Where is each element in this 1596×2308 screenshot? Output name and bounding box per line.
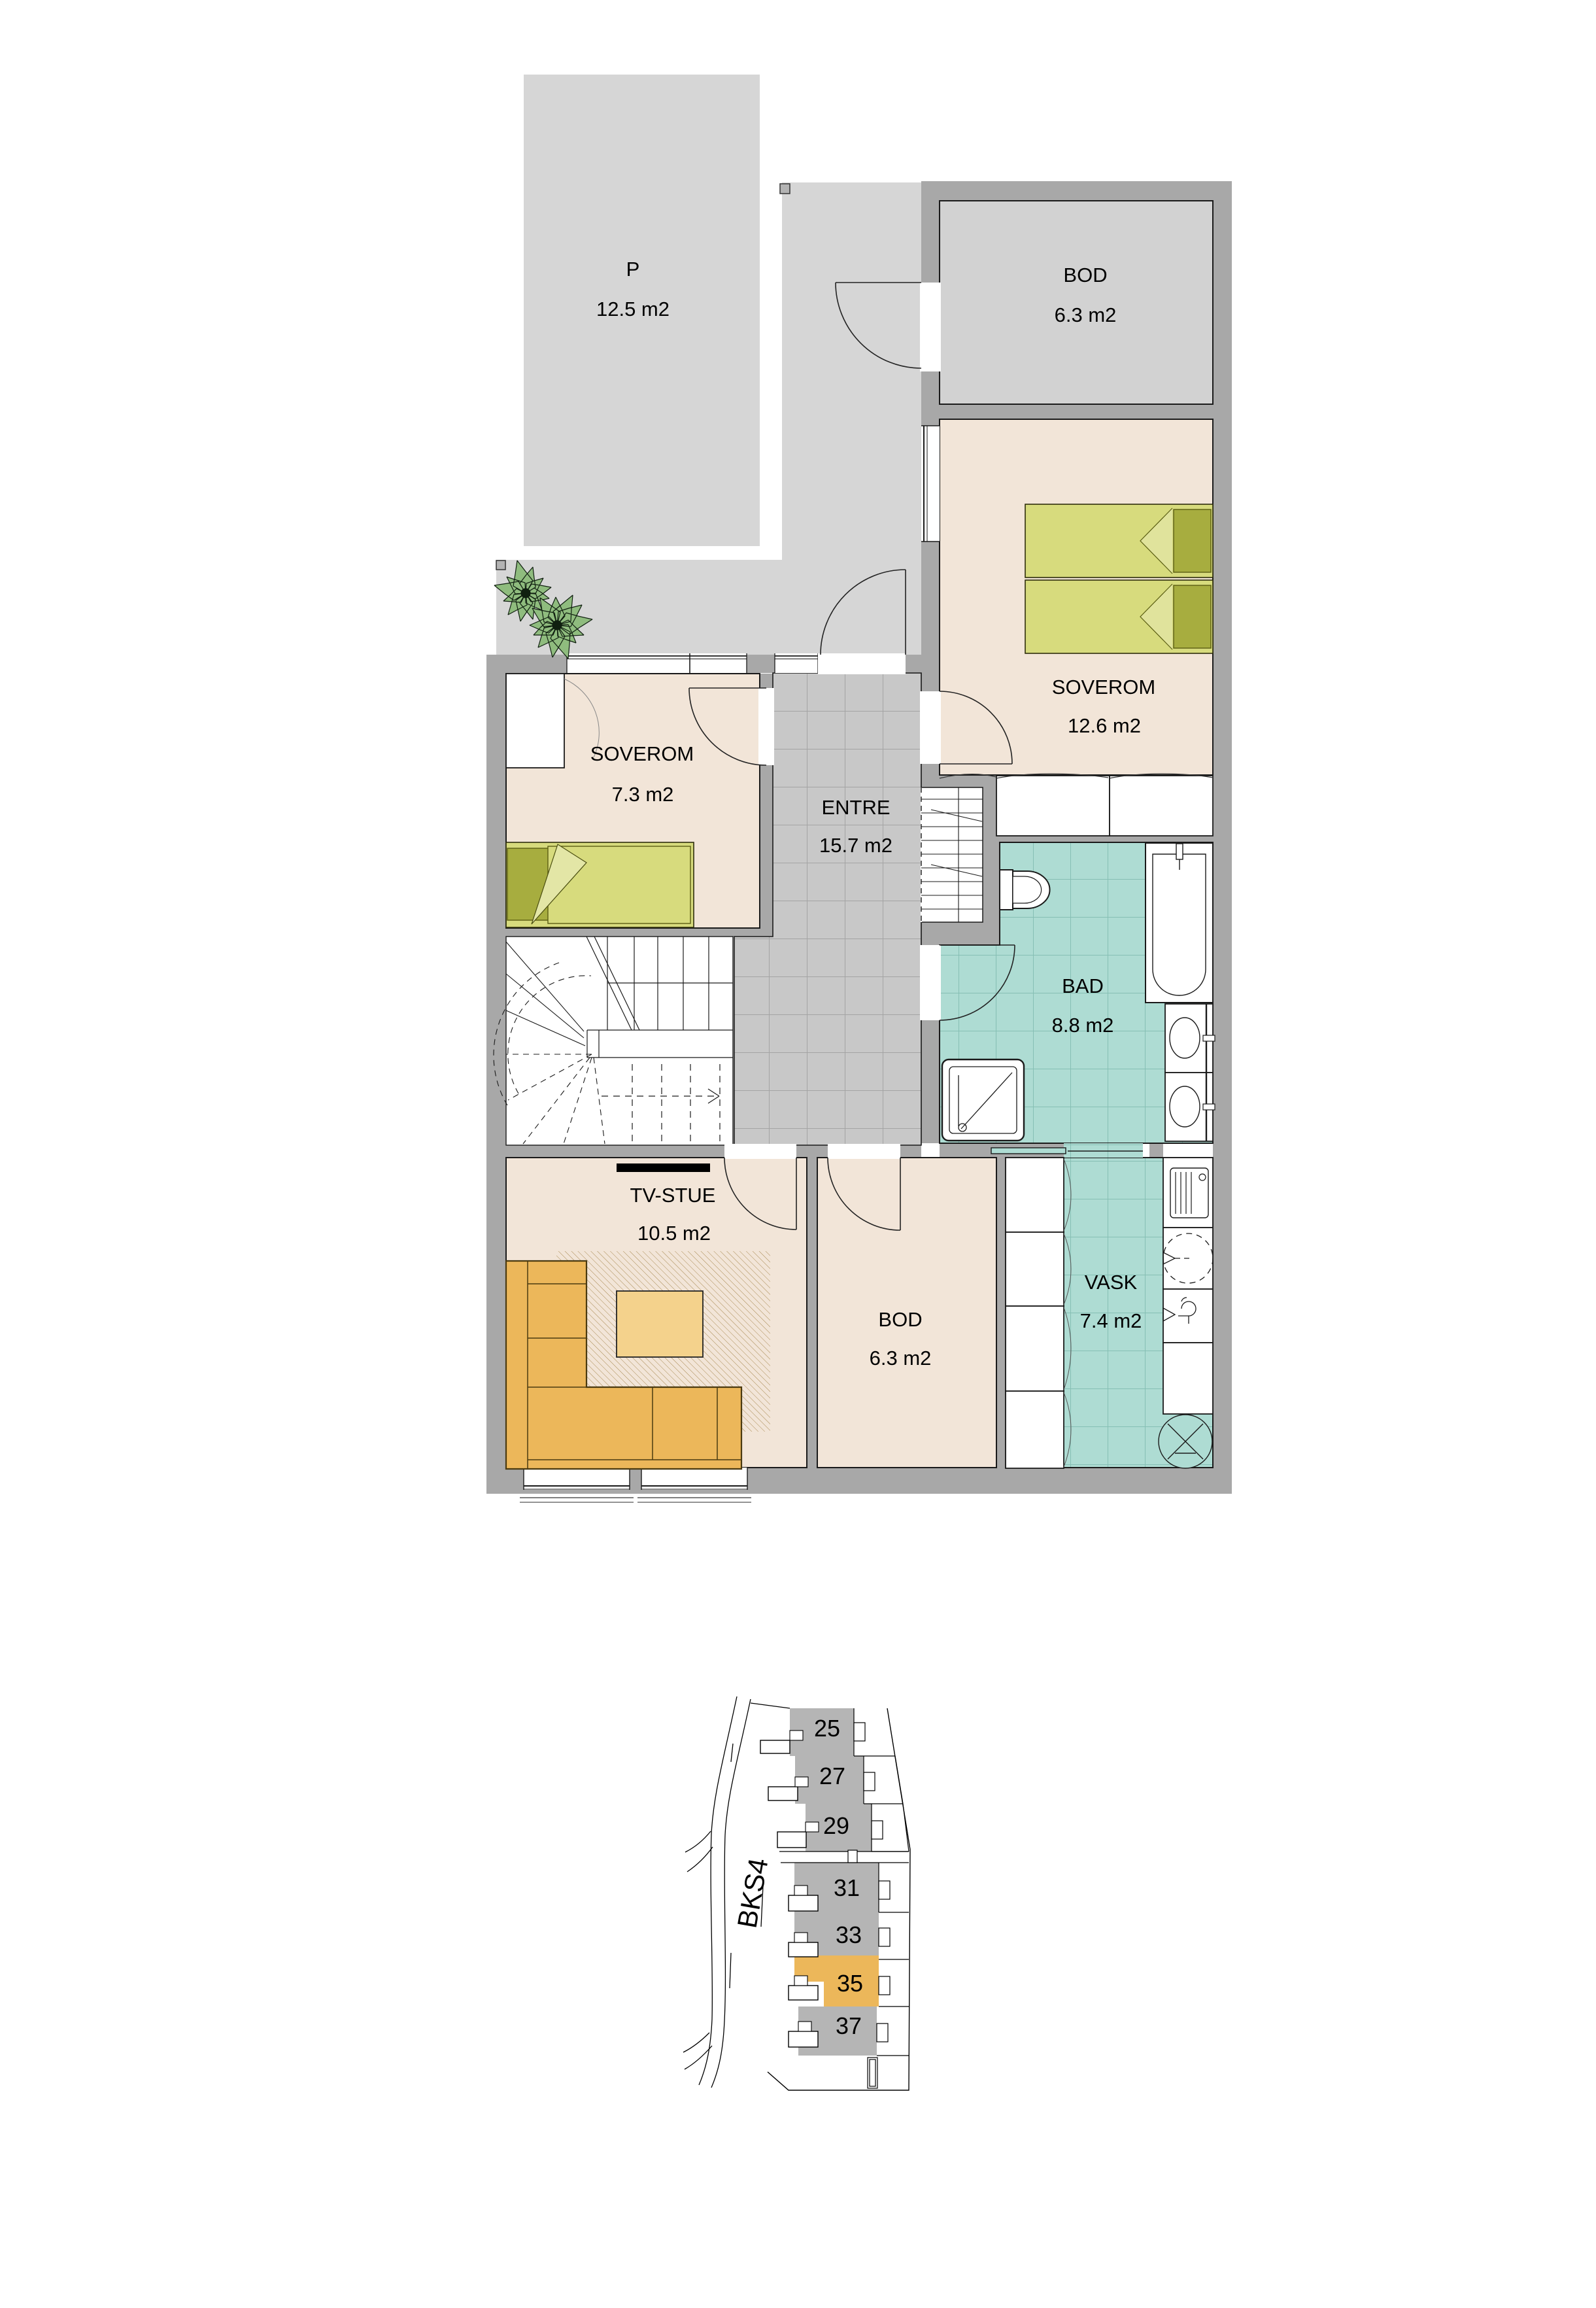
svg-text:12.6 m2: 12.6 m2	[1068, 714, 1141, 737]
svg-text:37: 37	[836, 2012, 862, 2039]
svg-text:VASK: VASK	[1085, 1271, 1138, 1294]
svg-text:6.3 m2: 6.3 m2	[1055, 303, 1117, 326]
svg-text:25: 25	[814, 1715, 840, 1742]
svg-text:12.5 m2: 12.5 m2	[596, 298, 670, 320]
svg-text:TV-STUE: TV-STUE	[630, 1184, 716, 1207]
svg-text:29: 29	[823, 1812, 849, 1839]
svg-text:10.5 m2: 10.5 m2	[637, 1222, 711, 1245]
svg-text:31: 31	[834, 1874, 860, 1901]
svg-text:BOD: BOD	[1063, 264, 1107, 286]
svg-text:7.3 m2: 7.3 m2	[612, 783, 674, 806]
svg-text:SOVEROM: SOVEROM	[1052, 676, 1155, 698]
svg-text:33: 33	[836, 1921, 862, 1948]
svg-text:7.4 m2: 7.4 m2	[1080, 1309, 1142, 1332]
svg-text:15.7 m2: 15.7 m2	[819, 834, 892, 857]
svg-text:8.8 m2: 8.8 m2	[1052, 1014, 1114, 1037]
svg-text:P: P	[626, 258, 640, 281]
svg-text:6.3 m2: 6.3 m2	[870, 1347, 932, 1369]
svg-text:SOVEROM: SOVEROM	[590, 742, 694, 765]
svg-text:ENTRE: ENTRE	[821, 796, 890, 819]
svg-text:27: 27	[819, 1763, 845, 1789]
svg-text:BAD: BAD	[1062, 974, 1104, 997]
svg-text:BOD: BOD	[878, 1308, 922, 1331]
svg-text:35: 35	[837, 1970, 863, 1997]
